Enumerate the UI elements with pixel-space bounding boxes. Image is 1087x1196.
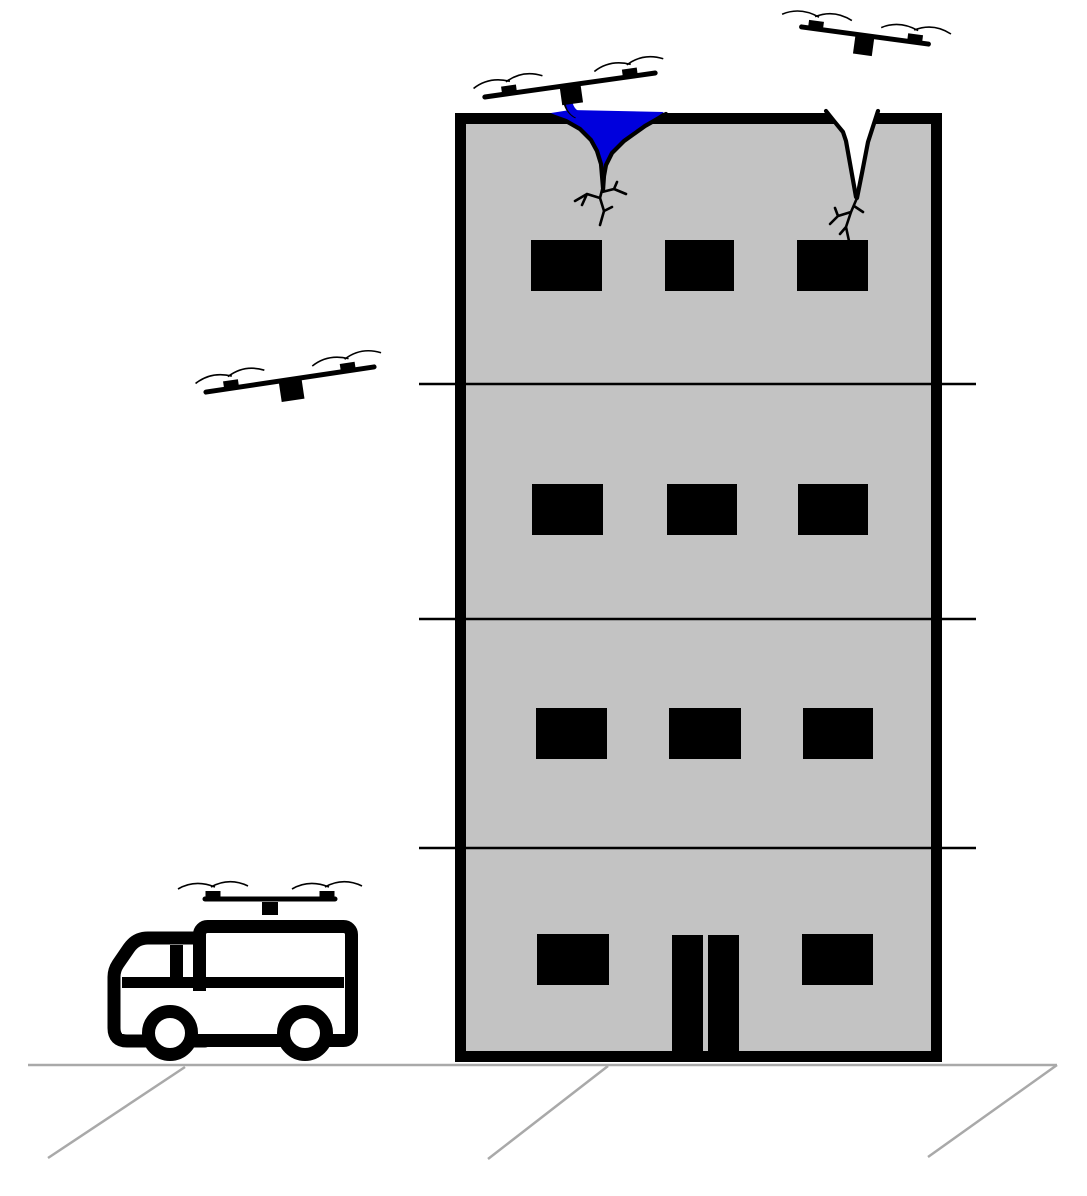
ground-hatch-2 xyxy=(488,1066,608,1159)
drone-approaching xyxy=(194,349,386,415)
drone-inspecting xyxy=(778,7,951,66)
drone-body xyxy=(853,35,874,56)
window-r2-c3 xyxy=(798,484,868,535)
building xyxy=(419,119,976,1057)
truck-door-pillar xyxy=(170,945,183,988)
blade-arc xyxy=(782,9,819,19)
figure-drone-building-repair xyxy=(0,0,1087,1196)
blade-arc xyxy=(815,11,852,21)
blade-arc xyxy=(626,55,663,65)
blade-arc xyxy=(227,366,264,377)
door-leaf-1 xyxy=(672,935,703,1051)
blade-arc xyxy=(211,882,248,887)
window-r4-c2 xyxy=(802,934,873,985)
blade-arc xyxy=(881,22,918,32)
ground-hatch-3 xyxy=(928,1065,1057,1157)
truck-body-line xyxy=(122,977,344,988)
rotor-hub-left xyxy=(206,891,221,898)
ground xyxy=(28,1065,1057,1159)
blade-arc xyxy=(344,349,381,360)
rotor-hub-right xyxy=(320,891,335,898)
window-r2-c2 xyxy=(667,484,737,535)
blade-arc xyxy=(325,882,362,887)
window-r3-c2 xyxy=(669,708,741,759)
window-r1-c1 xyxy=(531,240,602,291)
blade-arc xyxy=(505,72,542,82)
scene-canvas xyxy=(0,0,1087,1196)
drone-docked xyxy=(178,882,362,915)
door-leaf-2 xyxy=(708,935,739,1051)
truck-wheel-2 xyxy=(284,1012,327,1055)
truck-wheel-1 xyxy=(149,1012,192,1055)
window-r3-c3 xyxy=(803,708,873,759)
rotor-blades-right-icon xyxy=(292,882,362,889)
drone-body xyxy=(262,902,278,915)
support-truck xyxy=(114,927,352,1055)
rotor-blades-left-icon xyxy=(178,882,248,889)
blade-arc xyxy=(178,883,215,889)
blade-arc xyxy=(914,25,951,35)
window-r3-c1 xyxy=(536,708,607,759)
drone-body xyxy=(279,378,305,402)
window-r1-c2 xyxy=(665,240,734,291)
window-r1-c3 xyxy=(797,240,868,291)
blade-arc xyxy=(292,883,329,889)
drone-body xyxy=(560,85,583,106)
window-r4-c1 xyxy=(537,934,609,985)
ground-hatch-1 xyxy=(48,1067,185,1158)
window-r2-c1 xyxy=(532,484,603,535)
